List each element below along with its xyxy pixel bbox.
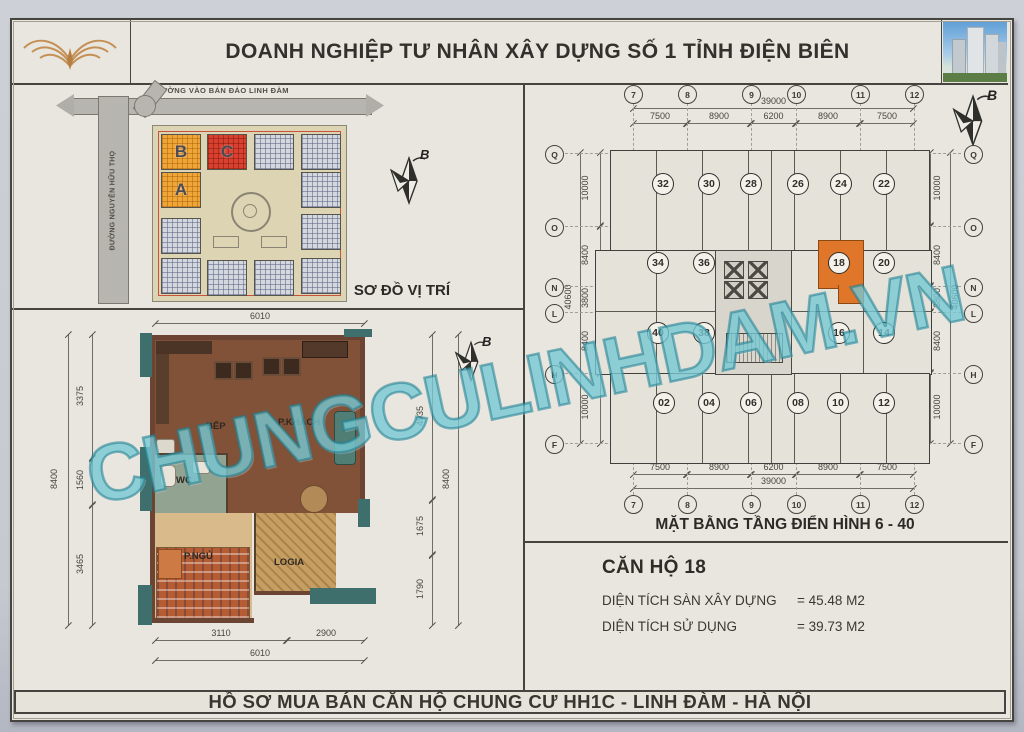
footer-band: HỒ SƠ MUA BÁN CĂN HỘ CHUNG CƯ HH1C - LIN… xyxy=(14,690,1006,714)
dim-label: 3800 xyxy=(580,276,590,320)
dim-line xyxy=(633,488,914,489)
unit-divider xyxy=(702,151,703,251)
unit-divider xyxy=(886,151,887,251)
dim-line xyxy=(92,335,93,458)
room-label-living: P.KHÁCH xyxy=(278,417,320,428)
sheet-border: DOANH NGHIỆP TƯ NHÂN XÂY DỰNG SỐ 1 TỈNH … xyxy=(10,18,1014,722)
apartment-floorplan: BẾP P.KHÁCH WC P.NGỦ LOGIA xyxy=(150,335,365,625)
site-plan-title: SƠ ĐỒ VỊ TRÍ xyxy=(342,282,462,299)
grid-col-circle: 11 xyxy=(851,495,870,514)
company-logo-wings-icon xyxy=(20,30,120,74)
road-top-label: ĐƯỜNG VÀO BÁN ĐẢO LINH ĐÀM xyxy=(107,86,337,95)
unit-circle: 08 xyxy=(787,392,809,414)
dim-line xyxy=(633,123,687,124)
elevator xyxy=(724,281,744,299)
road-arrow-left xyxy=(56,94,74,117)
unit-circle: 24 xyxy=(830,173,852,195)
floor-plan-title: MẶT BẰNG TẦNG ĐIỂN HÌNH 6 - 40 xyxy=(625,516,945,534)
dim-label: 39000 xyxy=(633,476,914,486)
grid-col-circle: 11 xyxy=(851,85,870,104)
block-c-label: C xyxy=(221,142,233,162)
sofa xyxy=(334,411,356,465)
unit-divider xyxy=(596,311,716,312)
unit-circle: 34 xyxy=(647,252,669,274)
dim-label: 3375 xyxy=(75,374,85,418)
unit-circle: 04 xyxy=(698,392,720,414)
dim-label: 2900 xyxy=(287,628,365,638)
unit-divider xyxy=(656,151,657,251)
road-left-label: ĐƯỜNG NGUYỄN HỮU THỌ xyxy=(110,141,117,261)
dim-line xyxy=(600,373,601,443)
unit-divider xyxy=(748,151,749,251)
grid-row-circle: N xyxy=(964,278,983,297)
photo-tower xyxy=(998,42,1006,77)
unit-divider xyxy=(840,374,841,463)
grid-col-circle: 8 xyxy=(678,495,697,514)
north-label: B xyxy=(482,334,491,349)
grid-col-circle: 10 xyxy=(787,495,806,514)
dim-label: 10000 xyxy=(932,385,942,429)
dim-label: 6010 xyxy=(155,648,365,658)
dim-line xyxy=(68,335,69,625)
dim-line xyxy=(432,500,433,555)
unit-circle: 36 xyxy=(693,252,715,274)
pilaster xyxy=(140,333,152,377)
unit-divider xyxy=(840,151,841,251)
dim-label: 6010 xyxy=(155,311,365,321)
grid-row-circle: Q xyxy=(964,145,983,164)
site-parking xyxy=(261,236,287,248)
dim-line xyxy=(930,153,931,226)
range-hood xyxy=(302,341,348,358)
typical-floor-plan-panel: B xyxy=(523,85,1008,543)
dim-label: 8400 xyxy=(580,233,590,277)
grid-row-circle: O xyxy=(545,218,564,237)
building-core xyxy=(715,250,792,375)
grid-row-circle: F xyxy=(964,435,983,454)
unit-divider xyxy=(771,374,772,463)
dim-line xyxy=(633,474,687,475)
dim-label: 7500 xyxy=(633,111,687,121)
unit-circle: 28 xyxy=(740,173,762,195)
dim-label: 3800 xyxy=(932,276,942,320)
dim-line xyxy=(860,474,914,475)
building-photo xyxy=(943,21,1007,82)
site-block xyxy=(301,172,341,208)
central-plaza-inner xyxy=(243,204,257,218)
grid-row-circle: N xyxy=(545,278,564,297)
dim-line xyxy=(796,474,860,475)
grid-col-circle: 8 xyxy=(678,85,697,104)
dim-label: 8900 xyxy=(796,111,860,121)
kitchen-appliance xyxy=(282,357,301,376)
site-block xyxy=(301,134,341,170)
unit-circle: 38 xyxy=(693,322,715,344)
kitchen-appliance xyxy=(214,361,233,380)
unit-divider xyxy=(791,311,931,312)
unit-divider xyxy=(794,151,795,251)
dim-line xyxy=(751,474,796,475)
unit-divider xyxy=(702,374,703,463)
info-row-label: DIỆN TÍCH SỬ DỤNG xyxy=(602,619,737,634)
site-block-C: C xyxy=(207,134,247,170)
stairs xyxy=(726,333,783,363)
unit-circle: 18 xyxy=(828,252,850,274)
grid-col-circle: 9 xyxy=(742,85,761,104)
unit-circle: 26 xyxy=(787,173,809,195)
site-block xyxy=(161,258,201,294)
unit-divider xyxy=(794,374,795,463)
unit-circle: 02 xyxy=(653,392,675,414)
room-label-loggia: LOGIA xyxy=(274,557,304,568)
unit-circle: 32 xyxy=(652,173,674,195)
unit-circle: 22 xyxy=(873,173,895,195)
info-row-value: = 45.48 M2 xyxy=(797,593,865,608)
pillow xyxy=(158,549,182,579)
wall xyxy=(150,335,365,340)
road-arrow-right xyxy=(366,94,384,117)
dim-line xyxy=(930,373,931,443)
dim-line xyxy=(860,123,914,124)
kitchen-counter xyxy=(156,341,212,354)
grid-col-circle: 10 xyxy=(787,85,806,104)
dim-line xyxy=(432,555,433,625)
site-block xyxy=(161,218,201,254)
dim-line xyxy=(92,505,93,625)
room-label-kitchen: BẾP xyxy=(206,421,226,432)
grid-row-circle: Q xyxy=(545,145,564,164)
site-block xyxy=(254,260,294,296)
elevator xyxy=(748,281,768,299)
block-a-label: A xyxy=(175,180,187,200)
pilaster xyxy=(358,499,370,527)
info-row-value: = 39.73 M2 xyxy=(797,619,865,634)
unit-info-title: CĂN HỘ 18 xyxy=(602,557,706,579)
unit-divider xyxy=(656,374,657,463)
site-block xyxy=(207,260,247,296)
dim-label: 6200 xyxy=(751,111,796,121)
dim-line xyxy=(92,458,93,505)
balcony-slab xyxy=(310,588,376,604)
logo-cell xyxy=(12,20,131,83)
dim-label: 8400 xyxy=(580,319,590,363)
site-block-B: B xyxy=(161,134,201,170)
armchair xyxy=(300,485,328,513)
grid-row-circle: L xyxy=(545,304,564,323)
footer-title: HỒ SƠ MUA BÁN CĂN HỘ CHUNG CƯ HH1C - LIN… xyxy=(209,691,812,713)
dim-label: 3465 xyxy=(75,542,85,586)
unit-circle: 10 xyxy=(827,392,849,414)
dim-label: 4935 xyxy=(415,394,425,438)
kitchen-counter xyxy=(156,354,169,424)
dim-line xyxy=(600,153,601,226)
grid-col-circle: 12 xyxy=(905,495,924,514)
grid-col-circle: 7 xyxy=(624,495,643,514)
dim-label: 1790 xyxy=(415,567,425,611)
grid-col-circle: 12 xyxy=(905,85,924,104)
bedroom-floor xyxy=(154,513,252,621)
toilet xyxy=(160,465,176,487)
header-divider xyxy=(941,20,942,83)
unit-info-panel: CĂN HỘ 18 DIỆN TÍCH SÀN XÂY DỰNG = 45.48… xyxy=(523,543,1008,690)
info-row-label: DIỆN TÍCH SÀN XÂY DỰNG xyxy=(602,593,777,608)
grid-row-circle: L xyxy=(964,304,983,323)
unit-circle: 20 xyxy=(873,252,895,274)
dim-label: 8400 xyxy=(932,319,942,363)
dim-line xyxy=(287,640,365,641)
site-block xyxy=(301,258,341,294)
dim-line xyxy=(155,640,287,641)
photo-tower xyxy=(967,27,984,79)
scanned-dossier-page: DOANH NGHIỆP TƯ NHÂN XÂY DỰNG SỐ 1 TỈNH … xyxy=(0,0,1024,732)
site-parking xyxy=(213,236,239,248)
unit-circle: 40 xyxy=(647,322,669,344)
unit-divider xyxy=(886,374,887,463)
building-wing-bottom xyxy=(610,373,930,464)
dim-line xyxy=(155,323,365,324)
roundabout xyxy=(134,95,156,117)
elevator xyxy=(724,261,744,279)
building-wing-top xyxy=(610,150,930,252)
dim-label: 8400 xyxy=(932,233,942,277)
sink xyxy=(192,461,210,474)
dim-line xyxy=(687,123,751,124)
dim-label: 3110 xyxy=(155,628,287,638)
grid-col-circle: 9 xyxy=(742,495,761,514)
north-label: B xyxy=(987,87,997,103)
grid-row-circle: F xyxy=(545,435,564,454)
pilaster xyxy=(344,329,372,337)
dim-line xyxy=(687,474,751,475)
wall xyxy=(360,335,365,517)
room-label-bedroom: P.NGỦ xyxy=(184,551,213,562)
dim-label: 10000 xyxy=(932,166,942,210)
dim-label: 1675 xyxy=(415,504,425,548)
elevator xyxy=(748,261,768,279)
unit-circle: 06 xyxy=(740,392,762,414)
dim-line xyxy=(155,660,365,661)
site-block-A: A xyxy=(161,172,201,208)
grid-row-circle: H xyxy=(545,365,564,384)
kitchen-appliance xyxy=(234,361,253,380)
site-block xyxy=(254,134,294,170)
wall xyxy=(150,618,254,623)
pilaster xyxy=(138,585,152,625)
dim-line xyxy=(751,123,796,124)
apartment-plan-panel: 6010 xyxy=(12,310,523,690)
room-label-wc: WC xyxy=(176,475,192,486)
site-plan-panel: ĐƯỜNG VÀO BÁN ĐẢO LINH ĐÀM ĐƯỜNG NGUYỄN … xyxy=(12,85,523,310)
superblock: B C A xyxy=(152,125,347,302)
pilaster xyxy=(140,447,152,511)
site-block xyxy=(301,214,341,250)
grid-col-circle: 7 xyxy=(624,85,643,104)
dim-label: 10000 xyxy=(580,166,590,210)
dim-label: 8900 xyxy=(687,111,751,121)
block-b-label: B xyxy=(175,142,187,162)
dim-label: 39000 xyxy=(633,96,914,106)
unit-circle: 30 xyxy=(698,173,720,195)
unit-circle: 12 xyxy=(873,392,895,414)
north-label: B xyxy=(420,147,429,162)
photo-trees xyxy=(943,73,1007,82)
dim-label: 7500 xyxy=(860,111,914,121)
highlighted-unit-18-tab xyxy=(838,285,864,304)
header-band: DOANH NGHIỆP TƯ NHÂN XÂY DỰNG SỐ 1 TỈNH … xyxy=(12,20,1008,85)
dim-label: 10000 xyxy=(580,385,590,429)
loggia-floor xyxy=(254,513,336,595)
unit-divider xyxy=(771,151,772,251)
grid-row-circle: H xyxy=(964,365,983,384)
company-title: DOANH NGHIỆP TƯ NHÂN XÂY DỰNG SỐ 1 TỈNH … xyxy=(134,20,941,83)
unit-circle: 14 xyxy=(873,322,895,344)
dim-label: 1560 xyxy=(75,458,85,502)
dim-line xyxy=(432,335,433,500)
dim-label: 8400 xyxy=(49,457,59,501)
dim-line xyxy=(633,108,914,109)
dim-line xyxy=(796,123,860,124)
unit-divider xyxy=(748,374,749,463)
dim-label: 8400 xyxy=(441,457,451,501)
kitchen-appliance xyxy=(262,357,281,376)
unit-circle: 16 xyxy=(828,322,850,344)
grid-row-circle: O xyxy=(964,218,983,237)
